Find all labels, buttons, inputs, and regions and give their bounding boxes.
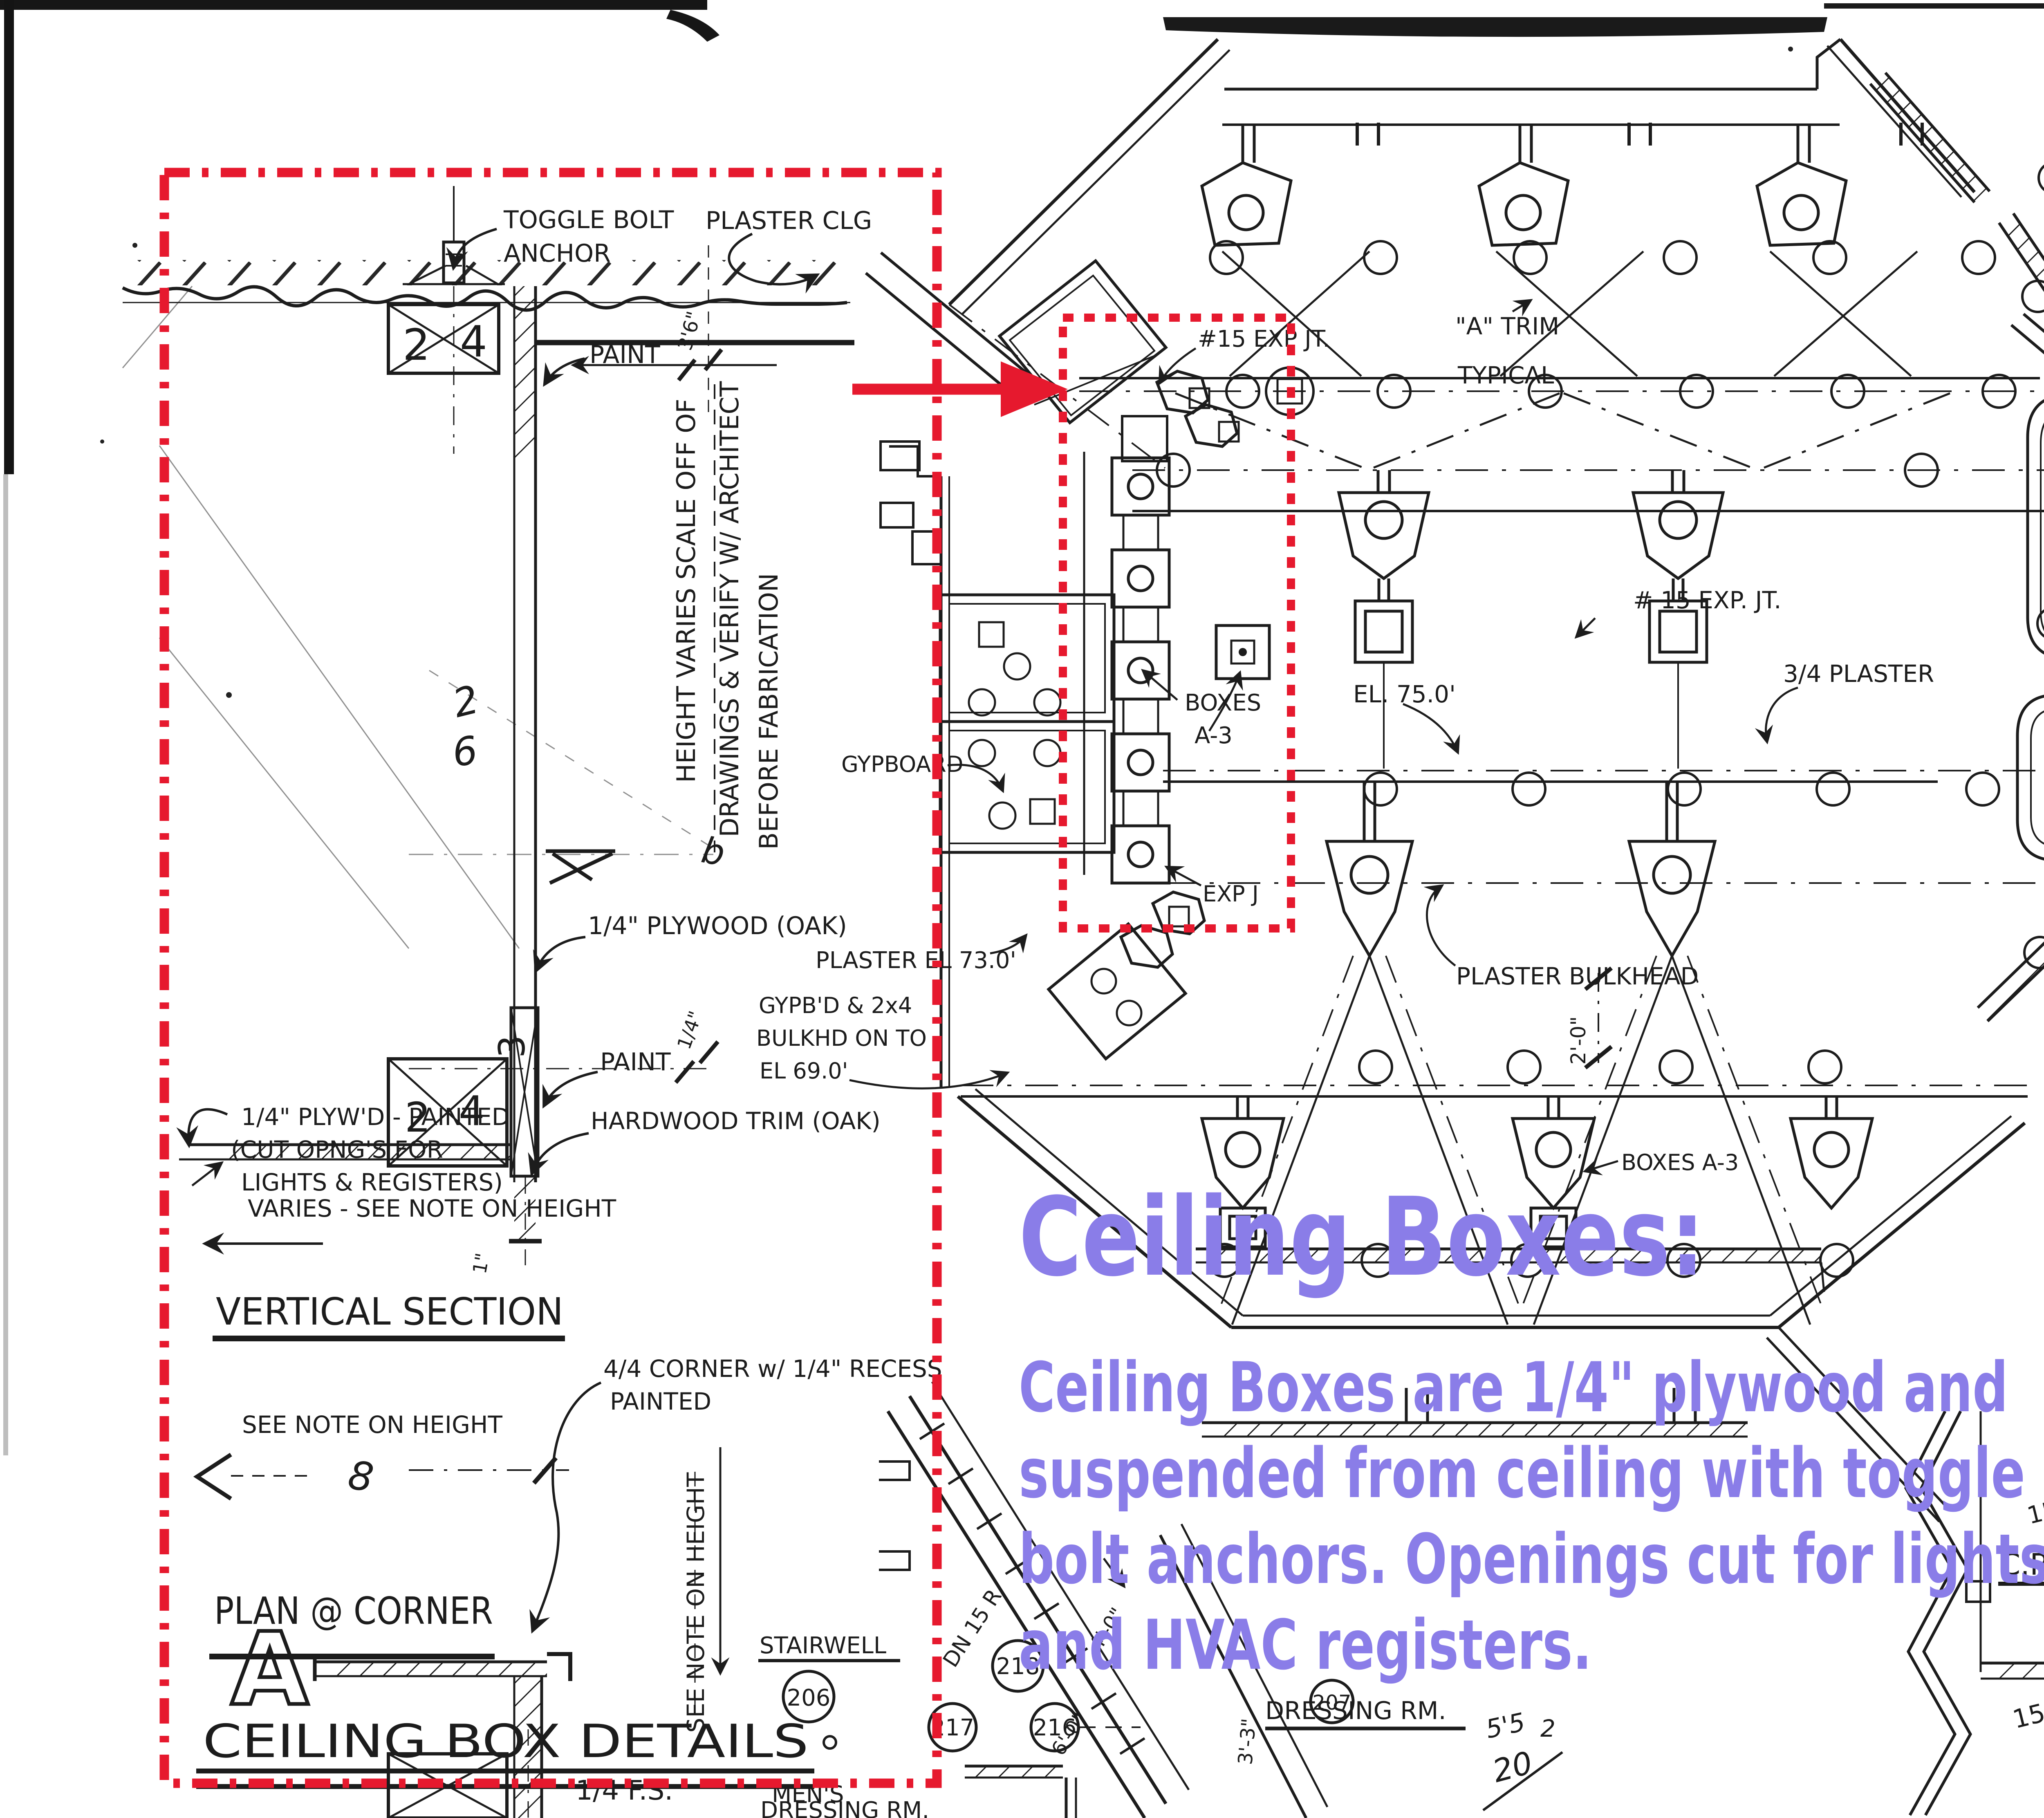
trim-hangers-row1 xyxy=(1202,125,1846,245)
overlay-line-1: Ceiling Boxes are 1/4" plywood and xyxy=(1019,1347,2008,1428)
dim-3-3: 3'-3" xyxy=(1234,1717,1261,1766)
room-216: 216 xyxy=(1033,1715,1077,1741)
title-vertical-section: VERTICAL SECTION xyxy=(216,1290,563,1334)
label-plywood-oak: 1/4" PLYWOOD (OAK) xyxy=(588,912,847,940)
label-el-750: EL. 75.0' xyxy=(1353,680,1456,708)
drawing-canvas: TOGGLE BOLT ANCHOR PLASTER CLG PAINT 3'6… xyxy=(0,0,2044,1818)
room-dressing-no: 207 xyxy=(1312,1691,1351,1715)
construction-lines xyxy=(123,286,713,948)
room-stairwell: STAIRWELL xyxy=(760,1632,886,1659)
overlay-heading: Ceiling Boxes: xyxy=(1019,1175,1705,1300)
height-note-2: DRAWINGS & VERIFY W/ ARCHITECT xyxy=(715,381,744,837)
scrib-20: 20 xyxy=(1489,1744,1536,1789)
label-boxes-a3-low: BOXES A-3 xyxy=(1621,1150,1739,1175)
red-dashed-rectangle xyxy=(164,173,937,1783)
trim-hangers-row3 xyxy=(1327,783,1715,956)
squiggle-8: 8 xyxy=(345,1452,377,1501)
mark-3: 3 xyxy=(491,1035,533,1058)
trim-hangers-row2 xyxy=(1339,470,1723,769)
label-varies: VARIES - SEE NOTE ON HEIGHT xyxy=(248,1195,616,1222)
sheet-title: CEILING BOX DETAILS xyxy=(203,1715,809,1768)
squiggle-6: 6 xyxy=(450,728,480,776)
height-note-3: BEFORE FABRICATION xyxy=(754,573,784,850)
label-toggle-bolt: TOGGLE BOLT xyxy=(503,206,674,234)
overlay-line-4: and HVAC registers. xyxy=(1019,1605,1592,1685)
label-anchor: ANCHOR xyxy=(504,239,611,268)
scanned-drawing-page: TOGGLE BOLT ANCHOR PLASTER CLG PAINT 3'6… xyxy=(0,0,2044,1818)
label-paint-mid: PAINT xyxy=(600,1048,671,1076)
detail-letter-a: A xyxy=(231,1611,309,1728)
label-gypbd-2: BULKHD ON TO xyxy=(756,1025,927,1051)
label-plaster-clg: PLASTER CLG xyxy=(706,206,872,235)
label-a-trim-1: "A" TRIM xyxy=(1455,312,1559,340)
scrib-55: 5'5 xyxy=(1483,1707,1528,1744)
squiggle-b: b xyxy=(698,829,728,874)
label-boxes-1: BOXES xyxy=(1185,690,1261,716)
label-exp-j: EXP J xyxy=(1203,881,1259,907)
label-see-note: SEE NOTE ON HEIGHT xyxy=(242,1411,502,1439)
dim-1in: 1" xyxy=(468,1251,494,1276)
room-stairwell-no: 206 xyxy=(787,1685,831,1711)
label-paint-top: PAINT xyxy=(589,341,660,369)
label-plywd-painted-3: LIGHTS & REGISTERS) xyxy=(241,1168,503,1196)
label-exp-jt-mid: # 15 EXP. JT. xyxy=(1633,586,1782,614)
red-arrow xyxy=(852,361,1068,417)
label-gypbd-3: EL 69.0' xyxy=(760,1058,848,1084)
overlay-line-2: suspended from ceiling with toggle xyxy=(1019,1433,2025,1513)
label-boxes-2: A-3 xyxy=(1195,722,1233,749)
label-plaster-el-730: PLASTER EL 73.0' xyxy=(816,947,1016,974)
mark-2: 2 xyxy=(403,320,430,370)
ceiling-box-chain xyxy=(1112,458,1169,883)
label-corner-recess-1: 4/4 CORNER w/ 1/4" RECESS xyxy=(603,1355,942,1383)
mark-4: 4 xyxy=(460,317,487,367)
room-dressing: DRESSING RM. xyxy=(1265,1697,1446,1725)
see-note-vertical: SEE NOTE ON HEIGHT xyxy=(682,1472,710,1733)
label-hardwood-trim: HARDWOOD TRIM (OAK) xyxy=(591,1107,881,1135)
size-15x18: 15x18 xyxy=(2010,1686,2044,1735)
label-plywd-painted-2: (CUT OPNG'S FOR xyxy=(231,1136,443,1163)
label-gypbd-1: GYPB'D & 2x4 xyxy=(759,993,912,1018)
label-plaster-34: 3/4 PLASTER xyxy=(1783,660,1934,688)
label-gypboard: GYPBOARD xyxy=(841,751,963,777)
label-plywd-painted-1: 1/4" PLYW'D - PAINTED xyxy=(241,1103,510,1131)
overlay-line-3: bolt anchors. Openings cut for lights xyxy=(1019,1519,2044,1599)
label-exp-jt-top: #15 EXP JT. xyxy=(1198,326,1330,352)
label-corner-recess-2: PAINTED xyxy=(610,1388,711,1415)
room-mens-2: DRESSING RM. xyxy=(760,1797,929,1818)
scrib-2: 2 xyxy=(1540,1715,1555,1742)
dim-2-0: 2'-0" xyxy=(1567,1016,1590,1065)
dim-3-6: 3'6" xyxy=(673,309,706,353)
label-a-trim-2: TYPICAL xyxy=(1457,361,1554,389)
dim-quarter: 1/4" xyxy=(673,1008,707,1052)
label-plaster-bulkhead: PLASTER BULKHEAD xyxy=(1456,962,1699,990)
squiggle-2: 2 xyxy=(448,677,483,726)
height-note-1: HEIGHT VARIES SCALE OFF OF xyxy=(671,399,701,783)
